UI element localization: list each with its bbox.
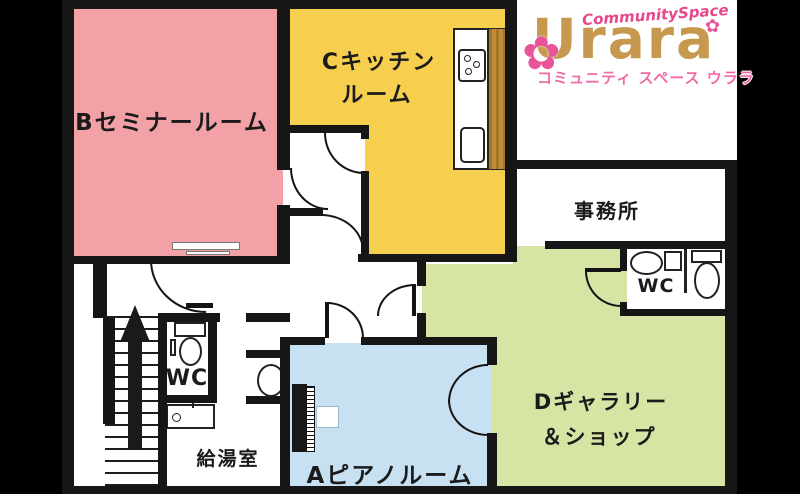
wall	[505, 160, 737, 169]
wc-left-toilet-icon	[179, 337, 202, 366]
wall	[158, 395, 217, 403]
up-arrow-icon	[120, 305, 150, 342]
wc-right-divider	[684, 249, 687, 293]
wall	[246, 313, 290, 322]
room-a-label: Aピアノルーム	[306, 456, 473, 490]
door-leaf	[186, 303, 213, 308]
wall	[283, 125, 368, 133]
door-leaf	[585, 268, 621, 272]
wall	[361, 337, 497, 345]
wc-left-toilet-tank-icon	[174, 322, 206, 337]
wall	[93, 263, 107, 318]
wall	[417, 262, 426, 286]
room-b-label: Bセミナールーム	[75, 103, 269, 137]
room-c-label-line1: Cキッチン	[322, 44, 436, 76]
room-d-label-line2: ＆ショップ	[542, 421, 657, 451]
wall	[487, 433, 497, 486]
door-leaf	[325, 302, 329, 338]
wc-left-flush-icon	[170, 339, 176, 356]
urara-logo: CommunitySpace Urara ✿ ✿ コミュニティ スペース ウララ	[520, 0, 738, 105]
wall	[620, 241, 627, 271]
wall	[62, 0, 74, 494]
stove-icon	[458, 49, 486, 82]
wc-right-toilet-icon	[694, 262, 720, 299]
wall	[725, 160, 737, 494]
flower-small-icon: ✿	[705, 18, 720, 36]
kitchen-counter-wood	[488, 28, 506, 170]
piano-bench-icon	[316, 406, 339, 428]
room-d-label-line1: Dギャラリー	[534, 386, 668, 416]
wall	[277, 0, 290, 170]
wc-left-label: WC	[166, 366, 208, 391]
wall	[620, 309, 730, 316]
wall	[545, 241, 730, 249]
kitchenette-label: 給湯室	[196, 444, 259, 471]
wc-right-sink-icon	[630, 251, 663, 275]
kitchen-sink-icon	[460, 127, 485, 163]
room-office-label: 事務所	[574, 195, 640, 224]
wall	[283, 208, 323, 216]
floorplan-screenshot: Bセミナールーム Cキッチン ルーム 事務所 WC WC Dギャラリー ＆ショッ…	[0, 0, 800, 494]
wall	[487, 337, 497, 365]
b-room-counter-icon2	[186, 251, 230, 255]
up-arrow-shaft	[128, 340, 142, 450]
wall	[246, 396, 288, 404]
logo-subtitle: コミュニティ スペース ウララ	[537, 67, 755, 88]
wall	[208, 313, 217, 403]
stair-rail-wall	[103, 318, 115, 424]
wc-right-label: WC	[638, 275, 675, 297]
wall	[358, 254, 517, 262]
wall	[280, 337, 290, 487]
piano-icon	[292, 384, 307, 452]
b-room-counter-icon	[172, 242, 240, 250]
wc-right-counter	[664, 251, 682, 271]
wall	[246, 350, 286, 358]
piano-keys-icon	[306, 386, 315, 452]
kitchenette-sink-icon	[166, 404, 215, 429]
door-leaf	[412, 284, 416, 316]
room-c-label-line2: ルーム	[341, 77, 412, 109]
wall	[505, 0, 517, 262]
